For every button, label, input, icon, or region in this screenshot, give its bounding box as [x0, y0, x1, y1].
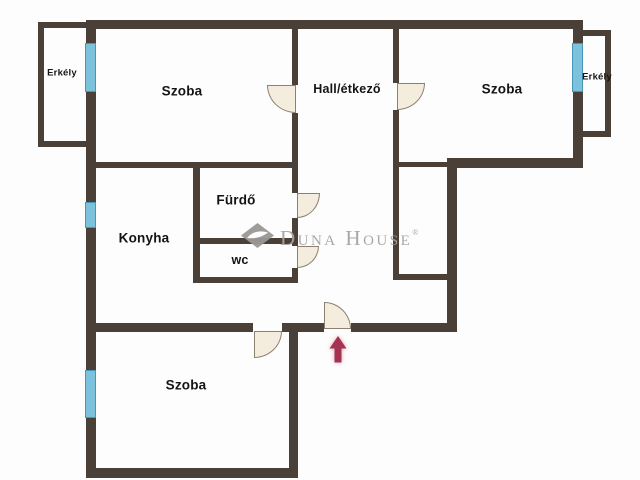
- window-balcony-right: [572, 43, 583, 92]
- floor-plan: Erkély Szoba Hall/étkező Szoba Erkély Fü…: [0, 0, 640, 480]
- wall-balcony-left-top: [38, 22, 86, 28]
- entrance-door-arc: [324, 302, 351, 329]
- room-label-wc: wc: [231, 253, 248, 267]
- room-label-erkely-right: Erkély: [582, 72, 612, 83]
- wall-konyha-furdo: [193, 168, 200, 283]
- wall-closet-top: [399, 162, 447, 167]
- wall-hall-bottom-left-segment: [86, 323, 253, 332]
- watermark-brand-text: Duna House®: [280, 228, 418, 249]
- brand-watermark: Duna House®: [241, 223, 418, 253]
- room-label-hall-etkezo: Hall/étkező: [313, 82, 381, 96]
- door-arc-szoba-top-right: [397, 83, 425, 110]
- wall-exterior-bottom: [86, 468, 298, 478]
- window-szoba-bottom: [85, 370, 96, 418]
- wall-closet-bottom: [393, 274, 447, 280]
- wall-hall-bottom-right-segment: [351, 323, 457, 332]
- door-arc-szoba-top-left: [267, 85, 296, 113]
- room-label-konyha: Konyha: [119, 231, 170, 246]
- room-label-szoba-top-left: Szoba: [162, 84, 203, 99]
- wall-szoba-tr-bottom: [447, 158, 583, 168]
- wall-furdo-right-upper: [292, 168, 298, 193]
- entrance-arrow-icon: [329, 336, 347, 368]
- wall-exterior-top: [86, 20, 583, 29]
- wall-szoba-bottom-right: [289, 323, 298, 477]
- room-label-furdo: Fürdő: [216, 193, 255, 208]
- room-label-erkely-left: Erkély: [47, 68, 77, 79]
- wall-balcony-right-bottom: [583, 131, 611, 137]
- duna-house-logo-diamond-icon: [241, 223, 274, 253]
- door-arc-szoba-bottom: [254, 331, 282, 358]
- wall-balcony-right-side: [605, 30, 611, 137]
- room-label-szoba-bottom: Szoba: [166, 378, 207, 393]
- wall-hall-szoba-tr-lower: [393, 110, 399, 280]
- wall-balcony-left-side: [38, 22, 44, 147]
- window-konyha: [85, 202, 96, 228]
- wall-wc-bottom: [193, 277, 298, 283]
- wall-hall-szoba-tr-upper: [393, 26, 399, 83]
- wall-mid-right-vertical: [447, 158, 457, 332]
- window-balcony-left: [85, 43, 96, 92]
- door-arc-furdo: [297, 193, 320, 218]
- wall-szoba-tl-hall-lower: [292, 113, 298, 162]
- registered-trademark-icon: ®: [412, 228, 418, 237]
- room-label-szoba-top-right: Szoba: [482, 82, 523, 97]
- wall-szoba-tl-hall-upper: [292, 26, 298, 85]
- wall-balcony-left-bottom: [38, 141, 86, 147]
